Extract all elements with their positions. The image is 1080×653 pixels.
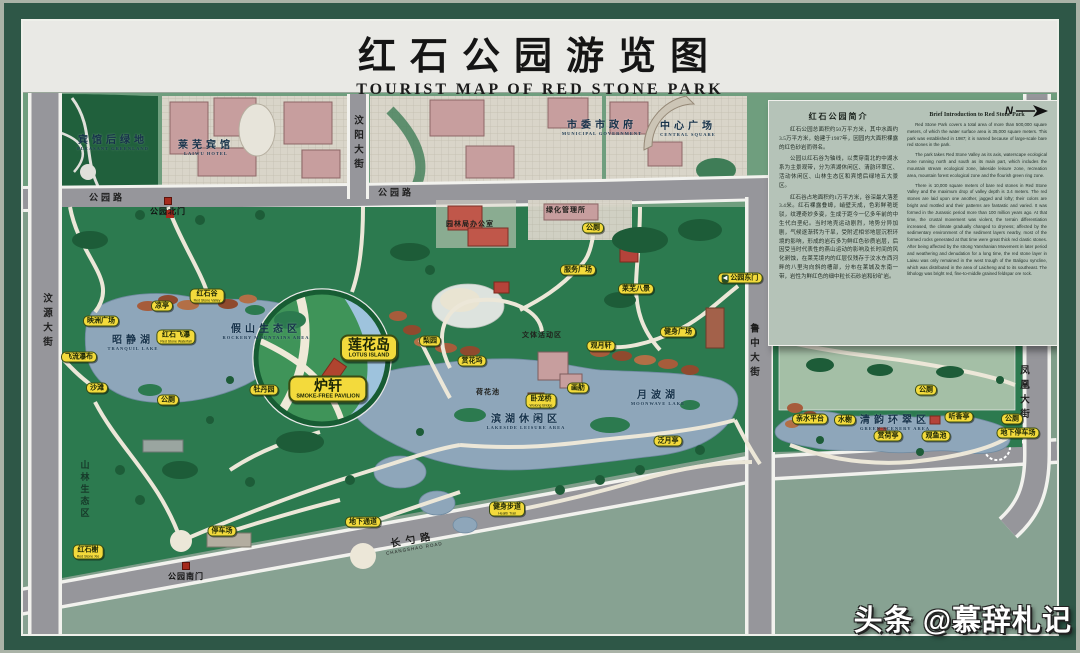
frame-top — [4, 3, 1076, 19]
introduction-title-cn: 红石公园简介 — [779, 111, 898, 122]
intro-paragraph-en: Red Stone Park covers a total area of mo… — [907, 122, 1047, 149]
introduction-english-column: Brief Introduction to Red Stone Park Red… — [907, 109, 1047, 337]
intro-paragraph-en: There is 10,000 square meters of bare re… — [907, 183, 1047, 279]
map-title-banner: 红石公园游览图 TOURIST MAP OF RED STONE PARK — [23, 21, 1057, 93]
intro-paragraph-cn: 红石谷占地面积约1万平方米，谷深最大落差3.4米。红石裸露叠嶂，峭壁天成，色彩鲜… — [779, 194, 898, 282]
magnifier-inset — [253, 289, 391, 427]
park-introduction-panel: N 红石公园简介 红石公园总面积约50万平方米，其中水面约3.5万平方米，始建于… — [768, 100, 1058, 346]
introduction-body-en: Red Stone Park covers a total area of mo… — [907, 122, 1047, 278]
compass-label: N — [1005, 105, 1013, 117]
frame-left — [4, 3, 21, 650]
tourist-map-page: 汶源大街汶阳大街鲁中大街凤凰大街公园路公园路长勺路CHANGSHAO ROAD宾… — [0, 0, 1080, 653]
compass-arrow-icon — [1015, 104, 1049, 118]
watermark-account: @慕辞札记 — [923, 605, 1072, 637]
compass-north-icon: N — [1005, 104, 1049, 118]
introduction-chinese-column: 红石公园简介 红石公园总面积约50万平方米，其中水面约3.5万平方米，始建于19… — [779, 109, 898, 337]
intro-paragraph-cn: 公园以红石谷为轴线，以贯穿南北的中湖水系为主景观带，分为滨湖休闲区、清韵环翠区、… — [779, 155, 898, 190]
introduction-body-cn: 红石公园总面积约50万平方米，其中水面约3.5万平方米，始建于1987年，因园内… — [779, 126, 898, 282]
map-title-chinese: 红石公园游览图 — [23, 25, 1057, 80]
map-title-english: TOURIST MAP OF RED STONE PARK — [23, 81, 1057, 99]
intro-paragraph-cn: 红石公园总面积约50万平方米，其中水面约3.5万平方米，始建于1987年，因园内… — [779, 126, 898, 152]
intro-paragraph-en: The park takes Red Stone Valley as its a… — [907, 152, 1047, 179]
watermark-brand: 头条 — [854, 605, 914, 637]
watermark: 头条 @慕辞札记 — [854, 597, 1072, 639]
frame-right — [1059, 3, 1076, 650]
